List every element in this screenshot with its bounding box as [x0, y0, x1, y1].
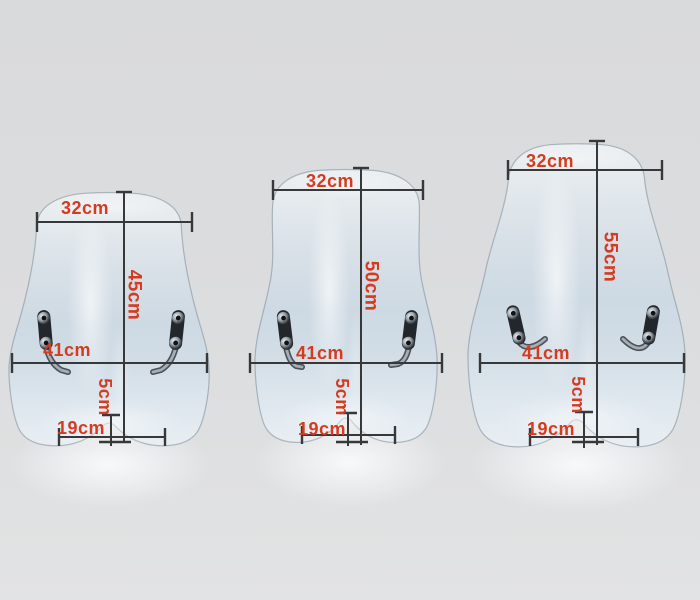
label-mount-width: 41cm — [43, 341, 91, 359]
windshield-drawing — [0, 180, 230, 480]
label-base-offset: 5cm — [569, 376, 587, 414]
label-base-offset: 5cm — [96, 378, 114, 416]
label-top-width: 32cm — [526, 152, 574, 170]
label-base-width: 19cm — [527, 420, 575, 438]
label-base-width: 19cm — [298, 420, 346, 438]
label-mount-width: 41cm — [296, 344, 344, 362]
windshield-figure-55cm: 32cm 55cm 41cm 5cm 19cm — [465, 120, 700, 460]
label-mount-width: 41cm — [522, 344, 570, 362]
label-height: 55cm — [601, 232, 620, 283]
label-base-width: 19cm — [57, 419, 105, 437]
label-base-offset: 5cm — [333, 378, 351, 416]
glass-highlight — [67, 209, 113, 399]
label-top-width: 32cm — [306, 172, 354, 190]
label-height: 45cm — [125, 270, 144, 321]
product-photo: 32cm 45cm 41cm 5cm 19cm — [0, 0, 700, 600]
windshield-figure-45cm: 32cm 45cm 41cm 5cm 19cm — [0, 180, 230, 480]
label-top-width: 32cm — [61, 199, 109, 217]
windshield-figure-50cm: 32cm 50cm 41cm 5cm 19cm — [240, 150, 460, 460]
label-height: 50cm — [362, 261, 381, 312]
